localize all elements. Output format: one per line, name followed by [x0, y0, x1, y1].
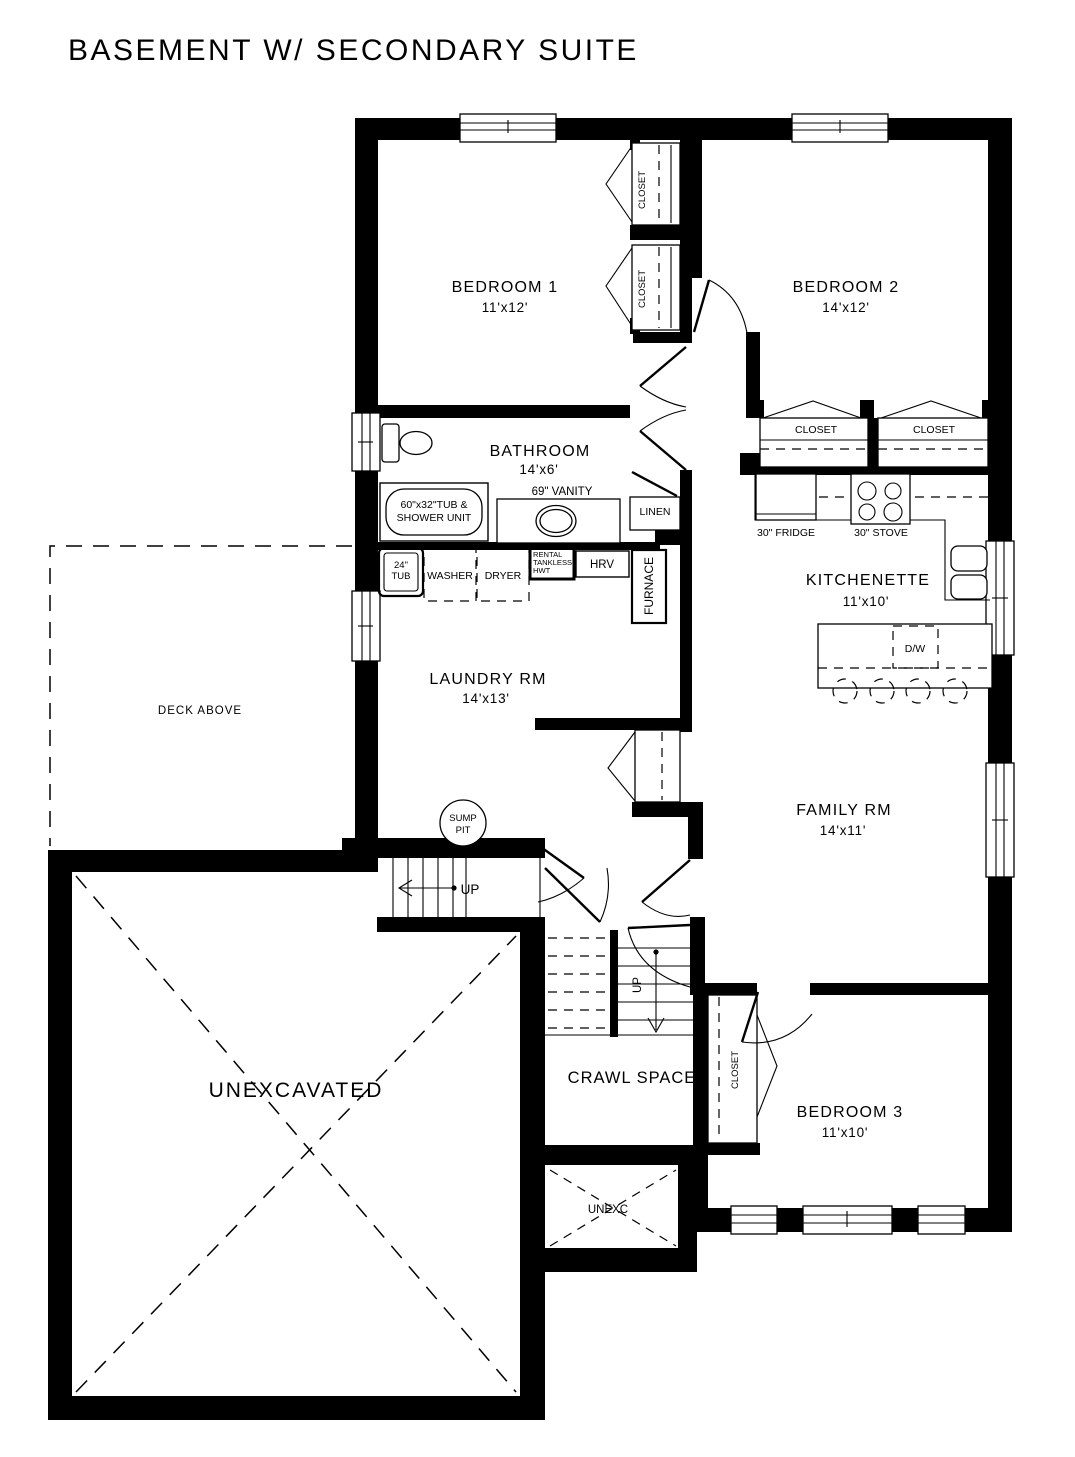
window-bedroom3-b — [803, 1206, 892, 1234]
linen-closet: LINEN — [630, 472, 680, 530]
hrv-fixture: HRV — [576, 551, 629, 577]
door-suite-upper — [640, 347, 686, 407]
page-title: BASEMENT W/ SECONDARY SUITE — [68, 34, 639, 67]
window-bedroom3-a — [731, 1206, 777, 1234]
bed3-closet-label: CLOSET — [730, 1051, 741, 1089]
stove-label: 30" STOVE — [854, 527, 908, 539]
door-suite-lower — [640, 410, 686, 470]
bedroom2-label: BEDROOM 2 — [793, 279, 900, 296]
family-room: FAMILY RM 14'x11' — [796, 802, 892, 838]
vanity-label: 69" VANITY — [532, 486, 593, 498]
furnace-fixture: FURNACE — [632, 550, 666, 623]
furnace-label: FURNACE — [642, 557, 656, 615]
tub24-line1: 24" — [394, 560, 408, 571]
window-bathroom — [352, 413, 380, 471]
stairs-main: UP — [393, 858, 540, 917]
dryer-label: DRYER — [485, 570, 522, 582]
floor-plan-page: BASEMENT W/ SECONDARY SUITE — [0, 0, 1075, 1457]
hwt-line3: HWT — [533, 566, 551, 575]
stove-fixture: 30" STOVE — [851, 474, 910, 539]
bifold-door-bed3-closet — [757, 1015, 777, 1117]
window-bedroom3-c — [918, 1206, 965, 1234]
bifold-door-bed2-closet-b — [881, 401, 981, 418]
bedroom1-label: BEDROOM 1 — [452, 279, 559, 296]
kitchenette-dims: 11'x10' — [843, 594, 890, 609]
floor-plan-canvas: BASEMENT W/ SECONDARY SUITE — [0, 0, 1075, 1457]
kitchen-sink-fixture — [951, 546, 987, 599]
hall-closet — [608, 730, 680, 802]
bedroom1-dims: 11'x12' — [482, 300, 529, 315]
bifold-door-hall-closet — [608, 732, 635, 801]
stairs-up-label: UP — [461, 882, 480, 897]
window-family — [986, 763, 1014, 877]
window-bedroom2 — [792, 114, 888, 142]
sump-line1: SUMP — [449, 813, 476, 824]
bed2-closet-a-label: CLOSET — [795, 424, 838, 436]
bathroom-label: BATHROOM — [490, 443, 591, 460]
stairs-lower-up-label: UP — [632, 977, 644, 993]
unexcavated-area: UNEXCAVATED — [76, 876, 516, 1392]
family-label: FAMILY RM — [796, 802, 892, 819]
laundry-label: LAUNDRY RM — [429, 671, 546, 688]
linen-label: LINEN — [640, 506, 671, 518]
hwt-fixture: RENTAL TANKLESS HWT — [530, 548, 574, 579]
unexcavated-label: UNEXCAVATED — [209, 1079, 384, 1102]
window-laundry — [352, 591, 380, 661]
laundry-dims: 14'x13' — [462, 691, 510, 706]
closet2-label: CLOSET — [637, 270, 648, 308]
window-bedroom1 — [460, 114, 556, 142]
bifold-door-closet2 — [606, 248, 632, 326]
vanity-fixture: 69" VANITY — [497, 486, 620, 543]
laundry-room: LAUNDRY RM 14'x13' 24" TUB WASHER DRYER … — [379, 548, 666, 846]
unexc-small-area: UNEXC — [550, 1170, 676, 1246]
fridge-label: 30" FRIDGE — [757, 527, 815, 539]
kitchen-island: D/W — [818, 624, 992, 703]
deck-above-label: DECK ABOVE — [158, 705, 242, 717]
kitchenette-label: KITCHENETTE — [806, 572, 930, 589]
bathroom: BATHROOM 14'x6' 60"x32"TUB & SHOWER UNIT… — [380, 424, 680, 543]
laundry-tub-fixture: 24" TUB — [379, 548, 423, 596]
washer-label: WASHER — [427, 570, 473, 582]
bedroom2-dims: 14'x12' — [822, 300, 870, 315]
stairs-lower: UP — [545, 938, 693, 1035]
deck-above-outline: DECK ABOVE — [50, 546, 352, 846]
kitchenette: 30" FRIDGE 30" STOVE KITCHENETTE 11'x10'… — [755, 474, 992, 703]
tub24-line2: TUB — [392, 571, 411, 582]
bedroom3-dims: 11'x10' — [822, 1125, 869, 1140]
tub-shower-fixture: 60"x32"TUB & SHOWER UNIT — [380, 483, 488, 541]
bedroom3: BEDROOM 3 11'x10' CLOSET — [708, 995, 903, 1143]
unexc-small-label: UNEXC — [588, 1204, 628, 1216]
sump-line2: PIT — [456, 825, 471, 836]
bifold-door-closet1 — [606, 146, 632, 222]
bedroom3-label: BEDROOM 3 — [797, 1104, 904, 1121]
tub-shower-line1: 60"x32"TUB & — [401, 499, 468, 511]
door-family — [642, 860, 690, 916]
bathroom-dims: 14'x6' — [519, 462, 558, 477]
crawl-space-label: CRAWL SPACE — [568, 1069, 697, 1087]
tub-shower-line2: SHOWER UNIT — [397, 512, 472, 524]
door-stairs — [545, 868, 608, 922]
family-dims: 14'x11' — [820, 823, 867, 838]
sump-pit: SUMP PIT — [440, 800, 486, 846]
bifold-door-bed2-closet-a — [763, 401, 861, 418]
doors — [538, 280, 812, 1043]
door-bedroom2 — [694, 280, 747, 333]
hrv-label: HRV — [590, 559, 614, 571]
closet1-label: CLOSET — [637, 171, 648, 209]
dishwasher-label: D/W — [905, 643, 926, 655]
toilet-fixture — [382, 424, 432, 462]
fridge-fixture: 30" FRIDGE — [756, 474, 816, 539]
bed2-closet-b-label: CLOSET — [913, 424, 956, 436]
